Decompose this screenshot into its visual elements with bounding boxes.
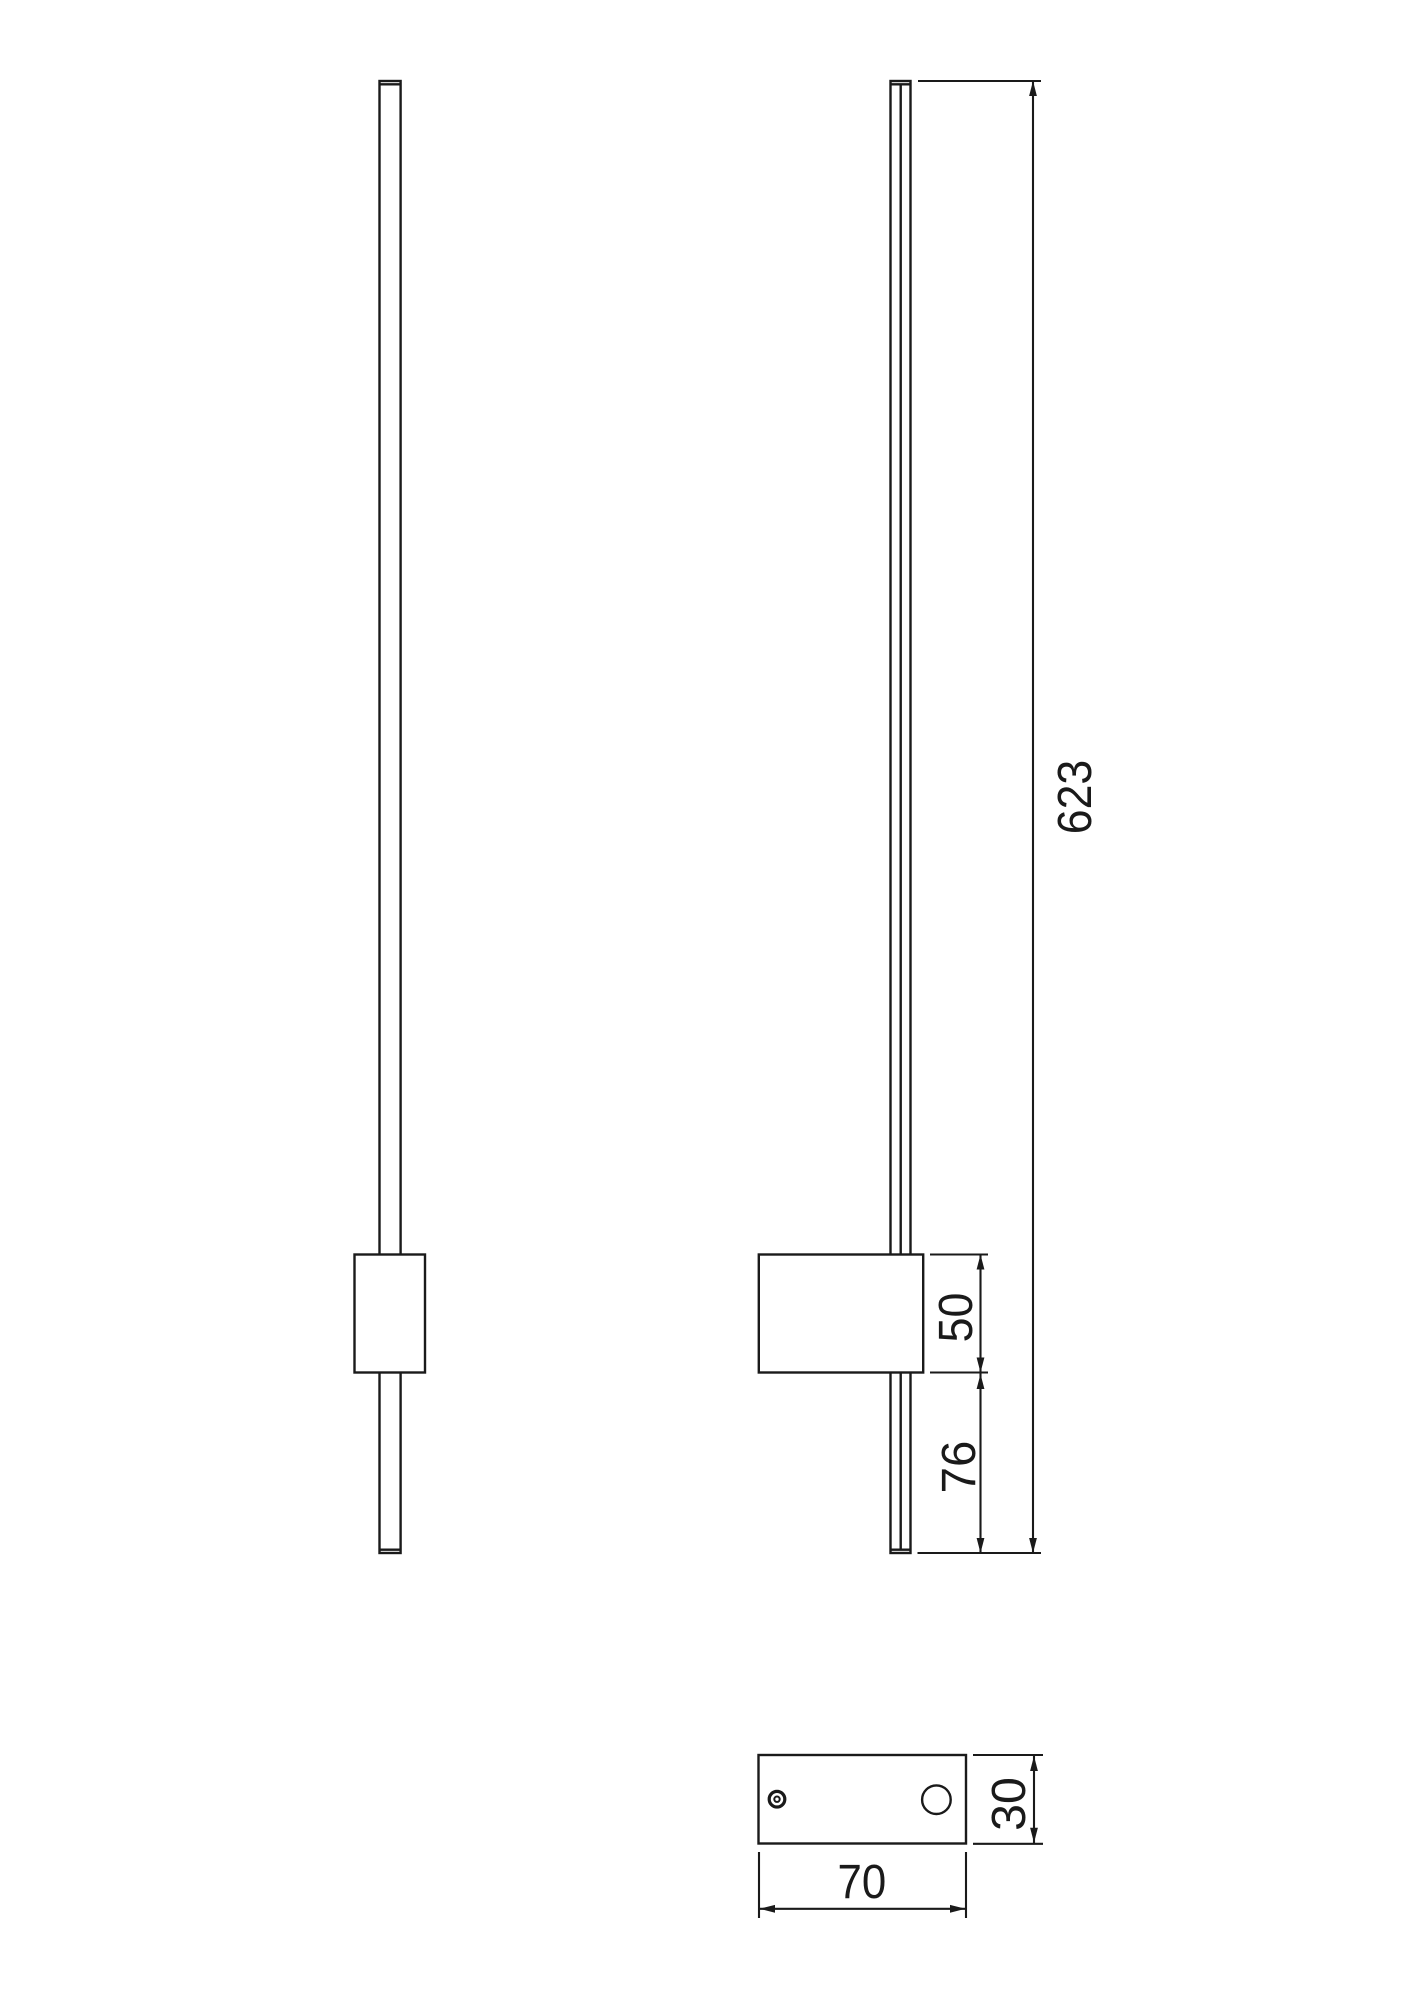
svg-text:70: 70 [838, 1856, 887, 1909]
svg-text:76: 76 [933, 1441, 986, 1494]
svg-text:623: 623 [1049, 760, 1102, 835]
svg-text:50: 50 [930, 1293, 983, 1343]
svg-text:30: 30 [983, 1777, 1036, 1831]
